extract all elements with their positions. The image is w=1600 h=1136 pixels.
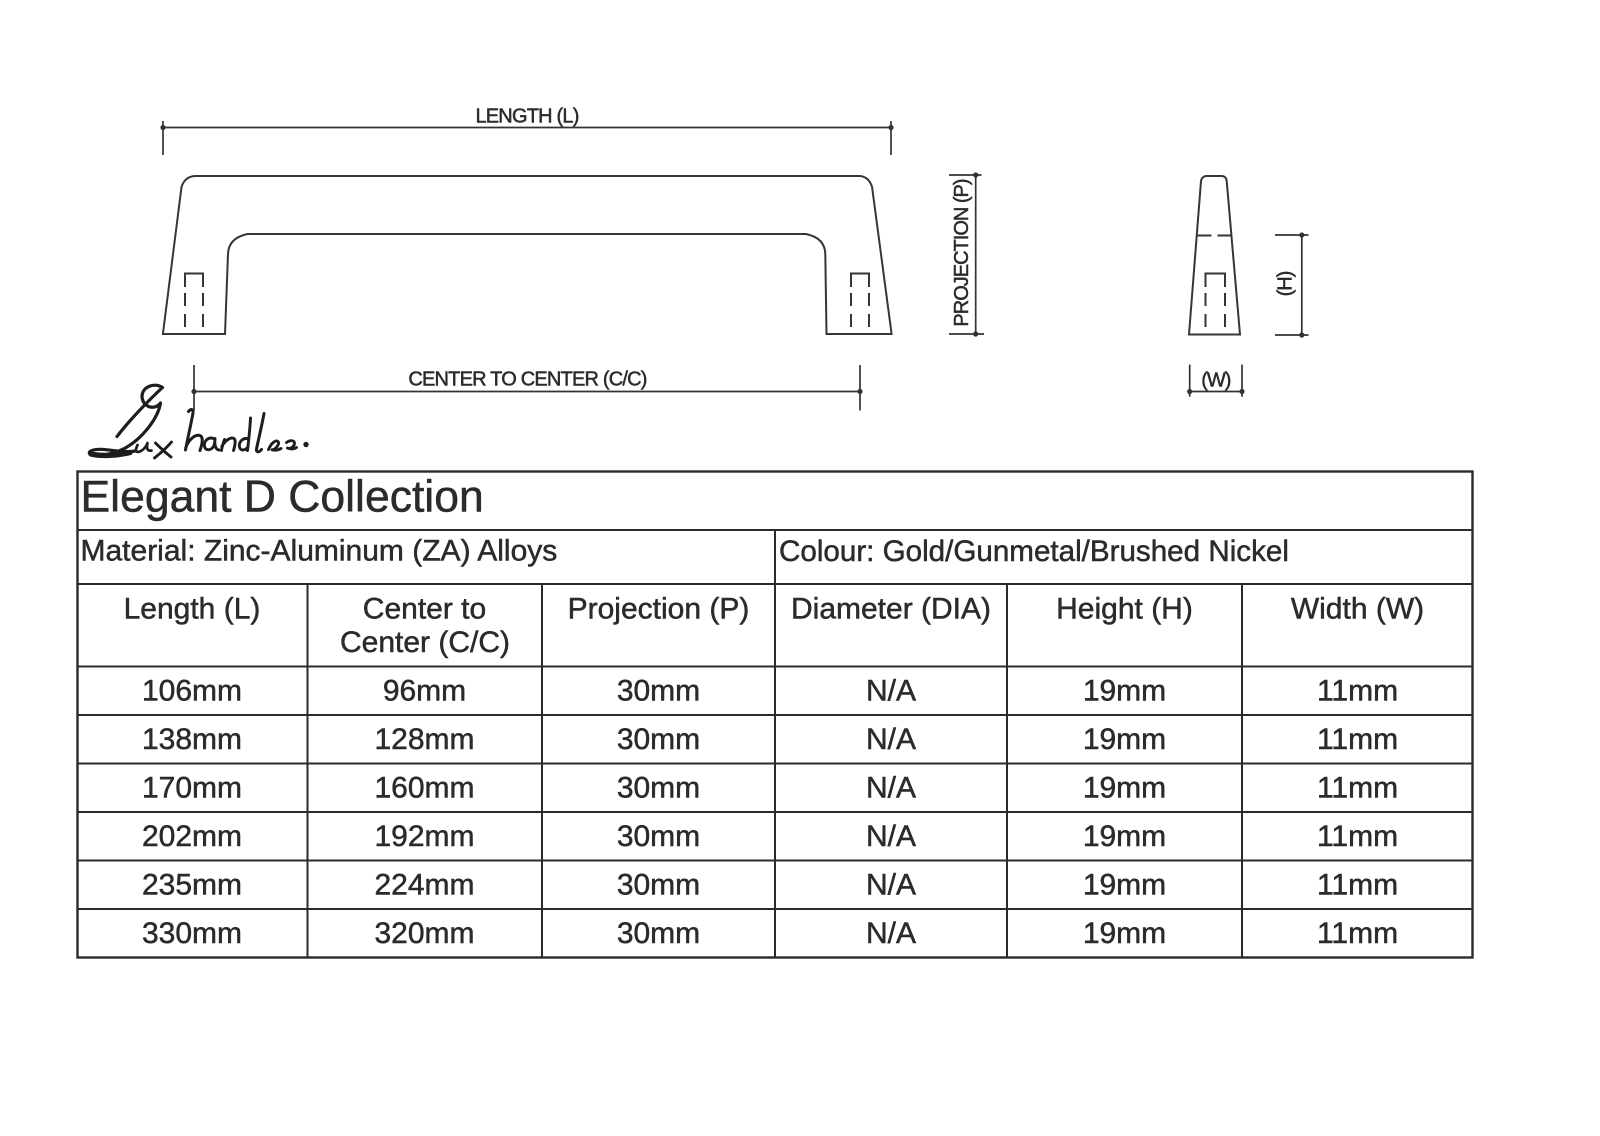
svg-text:320mm: 320mm xyxy=(374,917,474,950)
svg-text:Elegant D Collection: Elegant D Collection xyxy=(81,473,484,522)
svg-text:170mm: 170mm xyxy=(142,772,242,805)
svg-text:19mm: 19mm xyxy=(1083,869,1166,902)
svg-text:128mm: 128mm xyxy=(374,723,474,756)
svg-text:235mm: 235mm xyxy=(142,869,242,902)
svg-text:N/A: N/A xyxy=(866,675,916,708)
svg-text:160mm: 160mm xyxy=(374,772,474,805)
svg-text:30mm: 30mm xyxy=(617,675,700,708)
svg-text:Material: Zinc-Aluminum (ZA) A: Material: Zinc-Aluminum (ZA) Alloys xyxy=(81,535,558,568)
svg-text:Height (H): Height (H) xyxy=(1056,593,1193,626)
svg-text:138mm: 138mm xyxy=(142,723,242,756)
svg-text:N/A: N/A xyxy=(866,723,916,756)
svg-text:19mm: 19mm xyxy=(1083,772,1166,805)
svg-text:19mm: 19mm xyxy=(1083,675,1166,708)
svg-text:PROJECTION (P): PROJECTION (P) xyxy=(951,179,973,326)
svg-text:30mm: 30mm xyxy=(617,772,700,805)
svg-text:30mm: 30mm xyxy=(617,820,700,853)
svg-text:N/A: N/A xyxy=(866,820,916,853)
svg-text:11mm: 11mm xyxy=(1317,917,1398,950)
svg-text:19mm: 19mm xyxy=(1083,917,1166,950)
svg-text:19mm: 19mm xyxy=(1083,723,1166,756)
svg-text:11mm: 11mm xyxy=(1317,820,1398,853)
svg-text:202mm: 202mm xyxy=(142,820,242,853)
svg-text:Projection (P): Projection (P) xyxy=(568,593,750,626)
svg-text:Center (C/C): Center (C/C) xyxy=(340,626,510,659)
svg-text:30mm: 30mm xyxy=(617,917,700,950)
svg-text:Length (L): Length (L) xyxy=(124,593,261,626)
svg-text:N/A: N/A xyxy=(866,917,916,950)
svg-text:11mm: 11mm xyxy=(1317,675,1398,708)
svg-text:11mm: 11mm xyxy=(1317,869,1398,902)
svg-text:96mm: 96mm xyxy=(383,675,466,708)
svg-text:N/A: N/A xyxy=(866,869,916,902)
svg-text:30mm: 30mm xyxy=(617,869,700,902)
svg-text:11mm: 11mm xyxy=(1317,772,1398,805)
svg-text:CENTER TO CENTER (C/C): CENTER TO CENTER (C/C) xyxy=(408,368,646,390)
svg-text:11mm: 11mm xyxy=(1317,723,1398,756)
svg-text:192mm: 192mm xyxy=(374,820,474,853)
svg-text:(H): (H) xyxy=(1275,271,1297,296)
svg-text:LENGTH (L): LENGTH (L) xyxy=(475,106,578,128)
svg-text:Width (W): Width (W) xyxy=(1291,593,1424,626)
svg-text:N/A: N/A xyxy=(866,772,916,805)
svg-text:19mm: 19mm xyxy=(1083,820,1166,853)
svg-text:(W): (W) xyxy=(1201,369,1231,391)
svg-text:30mm: 30mm xyxy=(617,723,700,756)
svg-text:330mm: 330mm xyxy=(142,917,242,950)
svg-text:Diameter (DIA): Diameter (DIA) xyxy=(791,593,991,626)
svg-text:Colour: Gold/Gunmetal/Brushed: Colour: Gold/Gunmetal/Brushed Nickel xyxy=(779,535,1289,568)
svg-text:106mm: 106mm xyxy=(142,675,242,708)
svg-text:Center to: Center to xyxy=(363,593,486,626)
svg-text:224mm: 224mm xyxy=(374,869,474,902)
